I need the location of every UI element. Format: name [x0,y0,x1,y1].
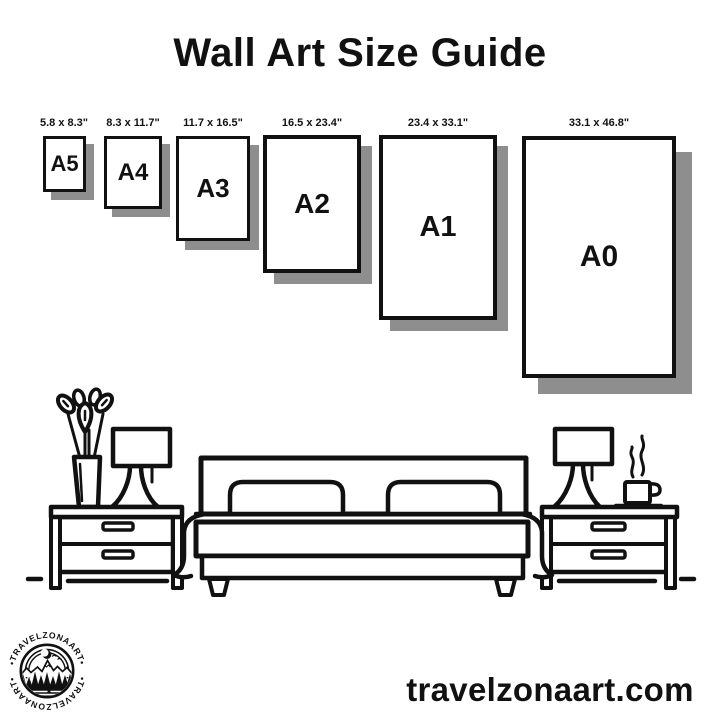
wall-art-size-guide-poster: Wall Art Size Guide 5.8 x 8.3" 8.3 x 11.… [0,0,720,720]
paper-size-name-a1: A1 [419,211,456,244]
bed-foot [496,579,515,595]
nightstand-icon [51,517,182,588]
paper-size-name-a5: A5 [50,151,78,177]
steam-icon [641,436,644,475]
paper-size-name-a0: A0 [580,240,618,274]
size-label-a4: 8.3 x 11.7" [106,117,160,129]
paper-box-a3: A3 [176,136,250,241]
paper-box-a4: A4 [104,136,162,209]
nightstand-top-board [51,507,182,517]
paper-box-a5: A5 [43,136,86,192]
paper-size-name-a2: A2 [294,188,330,220]
steam-icon [631,447,633,477]
plant-icon [55,388,115,507]
paper-box-a2: A2 [263,135,361,273]
table-lamp-icon [112,429,170,507]
bedroom-scene-illustration [0,380,720,600]
bed-icon [174,458,552,595]
website-url: travelzonaart.com [406,671,694,709]
paper-size-name-a3: A3 [196,173,229,204]
mattress [196,522,528,556]
size-label-a0: 33.1 x 46.8" [569,117,629,129]
paper-box-a1: A1 [379,135,497,320]
size-label-a3: 11.7 x 16.5" [183,117,243,129]
bed-foot [209,579,228,595]
size-label-a2: 16.5 x 23.4" [282,117,342,129]
paper-size-name-a4: A4 [118,159,149,187]
page-title: Wall Art Size Guide [0,31,720,76]
size-label-a5: 5.8 x 8.3" [40,117,88,129]
bed-base [202,556,523,578]
pillow-icon [388,482,500,514]
table-lamp-icon-right [554,429,612,507]
travelzonaart-logo-badge: •TRAVELZONAART• •TRAVELZONAART• [0,624,94,718]
nightstand-icon-right [542,517,675,588]
size-label-a1: 23.4 x 33.1" [408,117,468,129]
nightstand-top-board-right [542,507,677,517]
paper-box-a0: A0 [522,136,676,378]
coffee-cup-icon [616,436,661,506]
pillow-icon [230,482,343,514]
